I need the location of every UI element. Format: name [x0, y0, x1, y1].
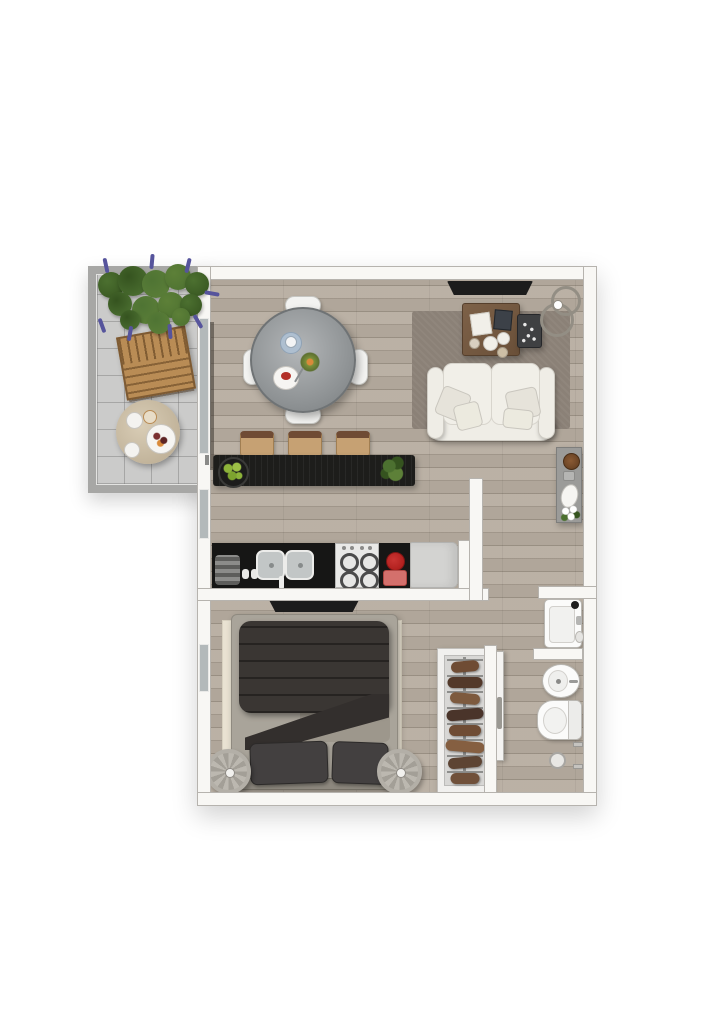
garment [449, 692, 480, 706]
wall-kitchen-partition [469, 478, 483, 601]
garment [447, 677, 482, 688]
garment [445, 739, 485, 753]
lime-bowl [218, 457, 249, 488]
bidet-faucet [569, 680, 578, 683]
sink-faucet-dot [571, 601, 579, 609]
garment [450, 773, 479, 784]
garment [450, 660, 479, 673]
toilet-paper-holder [549, 752, 566, 769]
wall-bottom [197, 792, 597, 806]
coffee-table [462, 303, 520, 356]
garment [449, 725, 481, 736]
bidet [542, 664, 580, 698]
balcony-door-handle [205, 455, 209, 465]
sink-inner [549, 606, 575, 643]
bedroom-window [199, 644, 209, 692]
wall-bathroom-north [538, 586, 597, 599]
coffee-machine-body [383, 570, 407, 586]
floor-plan [0, 0, 723, 1024]
stove-knob-3 [360, 546, 364, 550]
wall-bedroom-east [484, 645, 497, 793]
living-room-tv [447, 281, 533, 295]
fridge [410, 542, 458, 588]
wall-accessory-1 [573, 742, 583, 747]
bar-stool-2 [288, 431, 322, 457]
small-bowl [497, 347, 508, 358]
wall-accessory-2 [573, 764, 583, 769]
wall-right [583, 266, 597, 806]
soap-bottle [576, 616, 582, 625]
sofa-pillow-4 [502, 407, 534, 430]
round-nightstand-right [377, 749, 422, 794]
white-flowers [559, 504, 581, 522]
wall-sink-niche [533, 648, 583, 660]
balcony-sliding-door-glass [199, 318, 209, 454]
kitchen-window [199, 489, 209, 539]
toilet [537, 700, 582, 740]
dining-table [250, 307, 356, 413]
coffee-machine-head [386, 552, 405, 571]
wall-kitchen-bedroom-divider [197, 588, 489, 601]
garment [447, 756, 482, 770]
dark-book [493, 309, 513, 330]
burner-1 [340, 553, 359, 572]
coaster-2 [497, 332, 510, 345]
sofa-armrest-right [538, 367, 555, 439]
coaster-1 [483, 336, 498, 351]
small-cup [469, 338, 480, 349]
toilet-bowl [543, 707, 567, 734]
bar-plant [378, 454, 410, 484]
round-nightstand-left [206, 749, 251, 794]
bed-pillow-left [249, 741, 328, 786]
bidet-drain [556, 679, 561, 684]
breakfast-food [281, 372, 291, 380]
magazine [470, 312, 493, 337]
bar-stool-3 [336, 431, 370, 457]
sofa [427, 363, 555, 441]
cutting-boards [215, 555, 240, 585]
bar-stool-1 [240, 431, 274, 457]
bathroom-sink [544, 599, 582, 648]
gray-dish [563, 471, 575, 481]
floor-lamp-bulb [553, 300, 563, 310]
salt-shaker [242, 569, 249, 579]
sink-basin-right [285, 550, 314, 580]
foliage-blob [172, 308, 190, 326]
coffee-machine-counter [379, 543, 410, 588]
berry-bowl [146, 424, 176, 454]
side-table [517, 314, 542, 348]
gas-stove [335, 543, 379, 588]
bedroom-door-handle [497, 697, 502, 729]
brown-bowl [563, 453, 580, 470]
foliage-blob [148, 312, 170, 334]
espresso-cup [124, 442, 140, 458]
coffee-cup [126, 412, 143, 429]
blue-cup [285, 336, 297, 348]
stove-knob-2 [350, 546, 354, 550]
garment [446, 707, 484, 721]
balcony-door-slider [210, 322, 214, 470]
stove-knob-4 [368, 546, 372, 550]
wall-top [197, 266, 597, 280]
balcony-breakfast-table [116, 400, 180, 464]
console-sideboard [556, 447, 582, 523]
toilet-tank [568, 701, 581, 739]
stove-knob-1 [342, 546, 346, 550]
burner-2 [360, 553, 379, 572]
croissant-plate [143, 410, 157, 424]
